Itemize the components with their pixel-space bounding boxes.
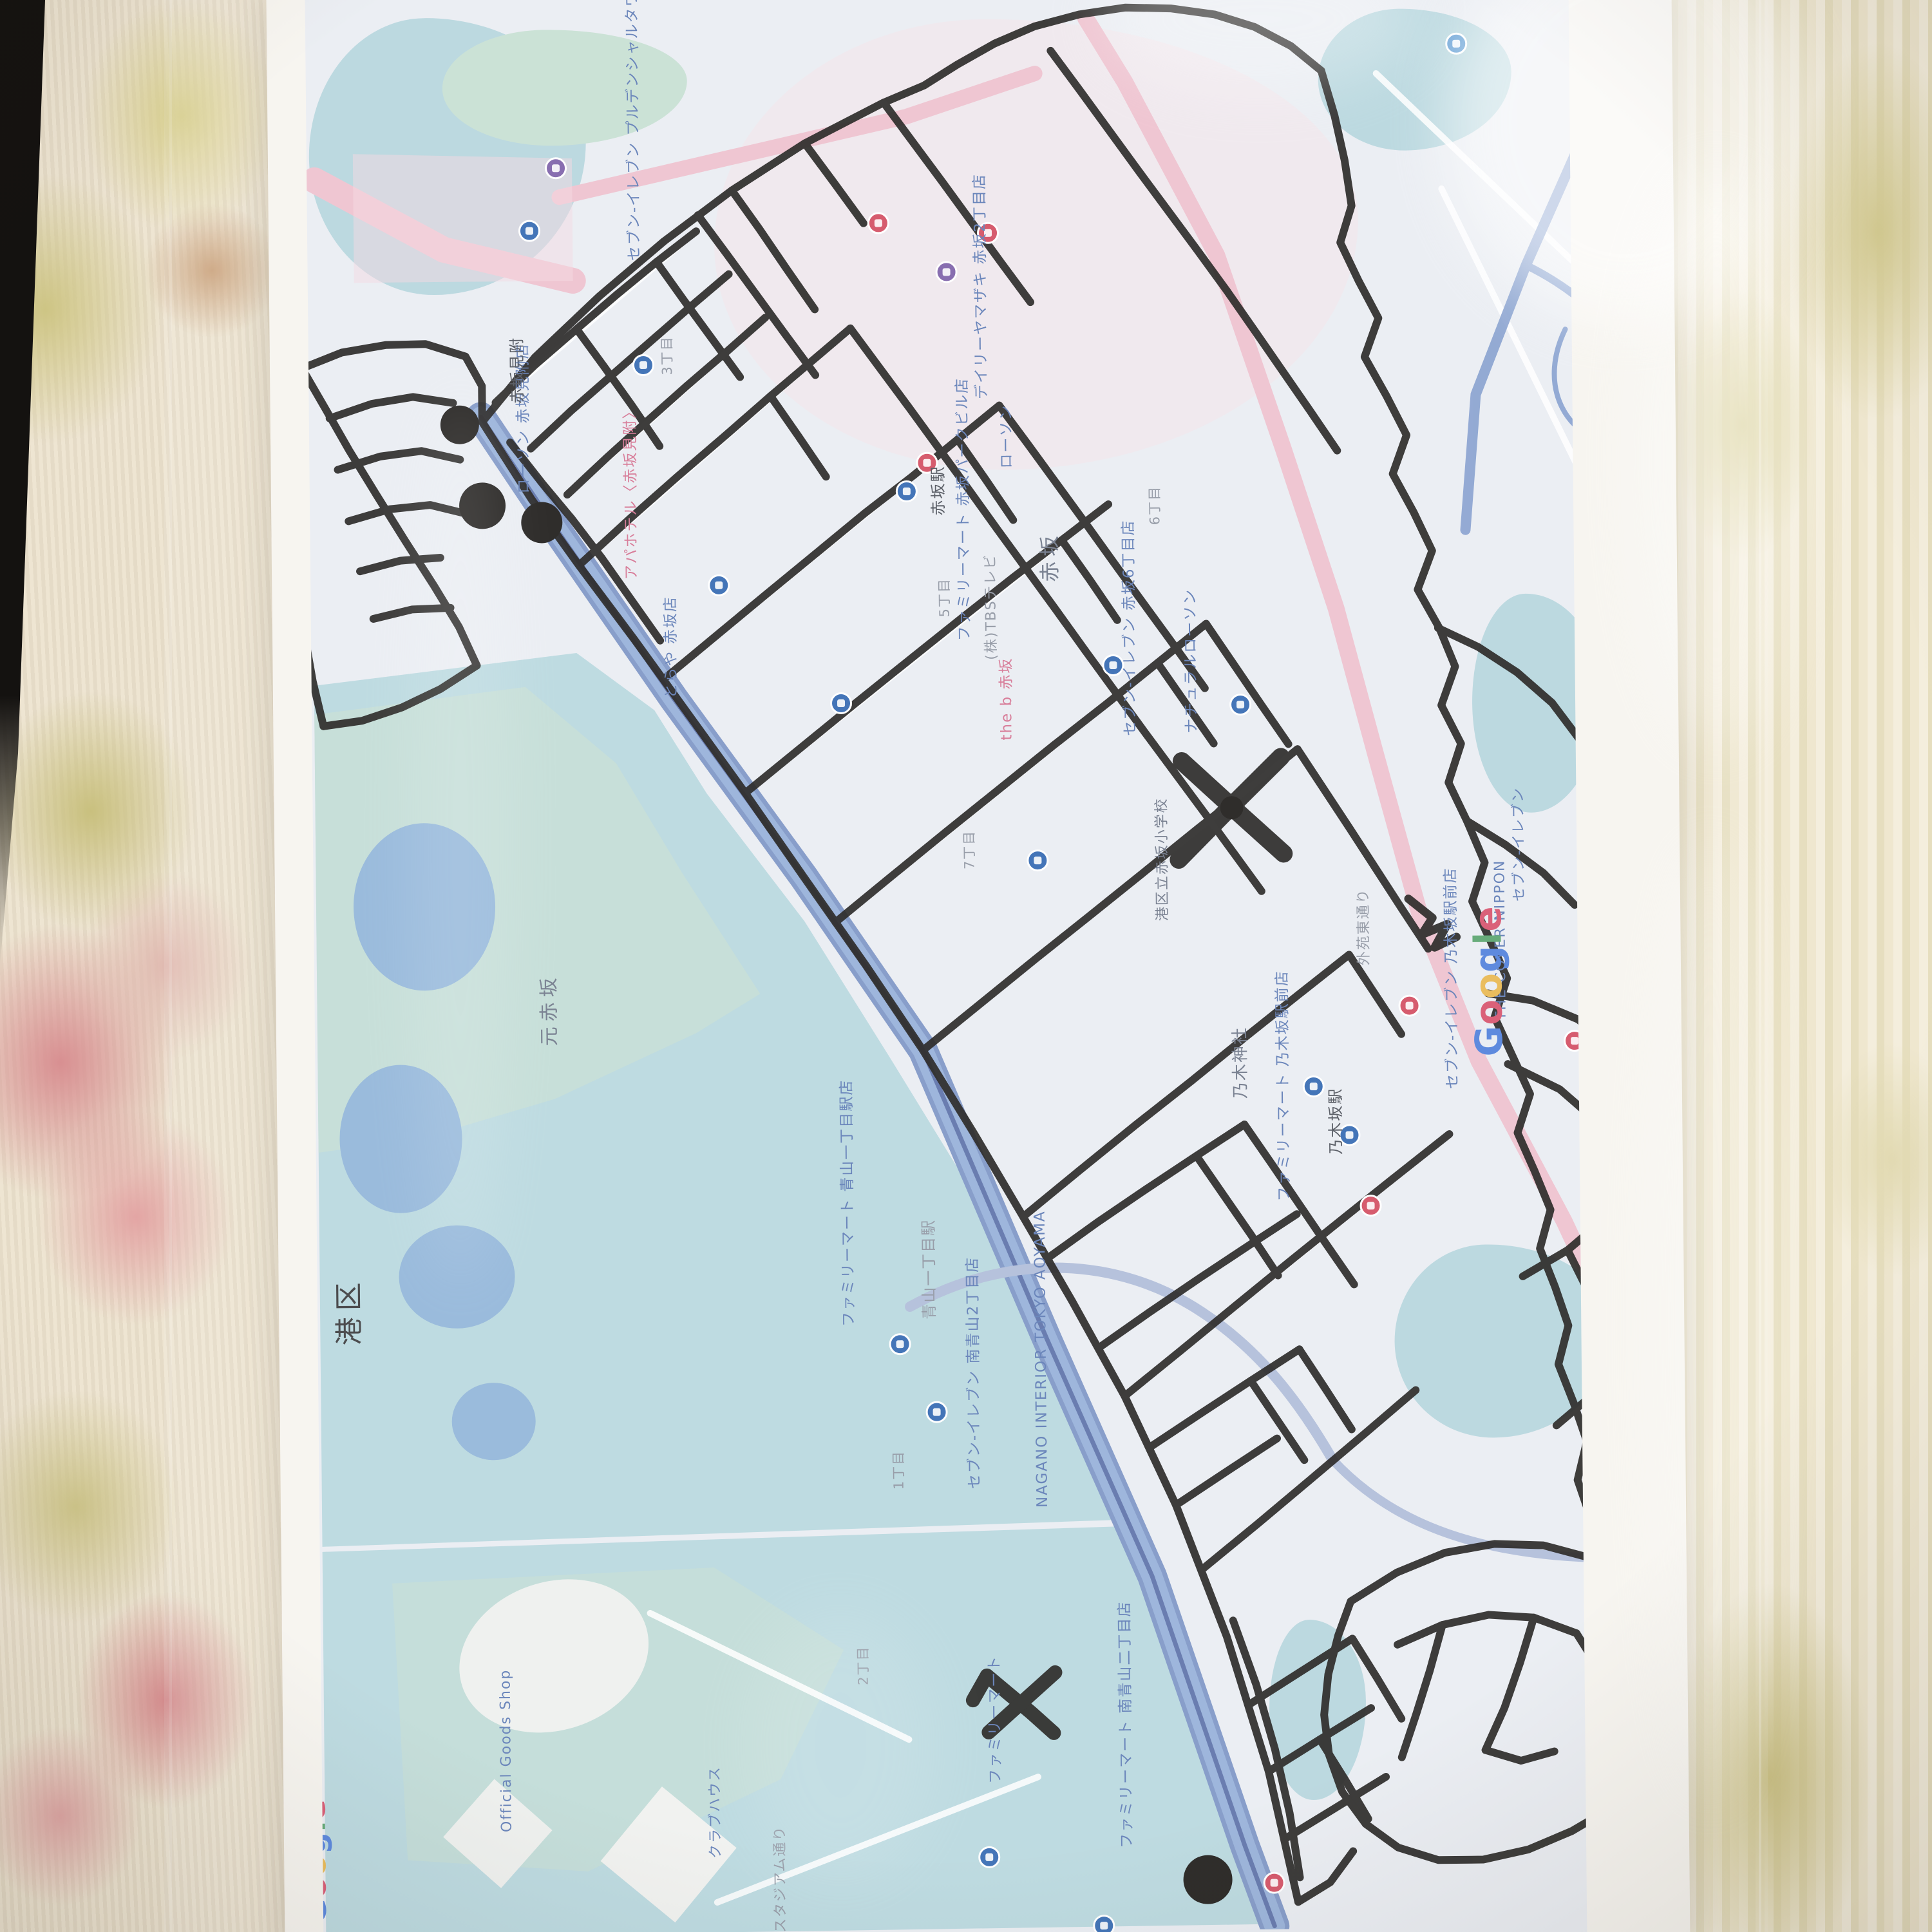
sleeve-glare	[744, 1610, 937, 1880]
plastic-sleeve	[164, 0, 1768, 1932]
sleeve-glare	[1633, 167, 1800, 747]
sleeve-edge	[1759, 0, 1761, 1932]
sleeve-glare	[409, 386, 512, 1288]
sleeve-glare	[1645, 837, 1774, 1803]
photo-of-annotated-map: セブン-イレブン プルデンシャルタワー店 ローソン 赤坂見附店 アパホテル〈赤坂…	[0, 0, 1932, 1932]
sleeve-glare	[1098, 0, 1420, 90]
sleeve-edge	[169, 0, 172, 1932]
